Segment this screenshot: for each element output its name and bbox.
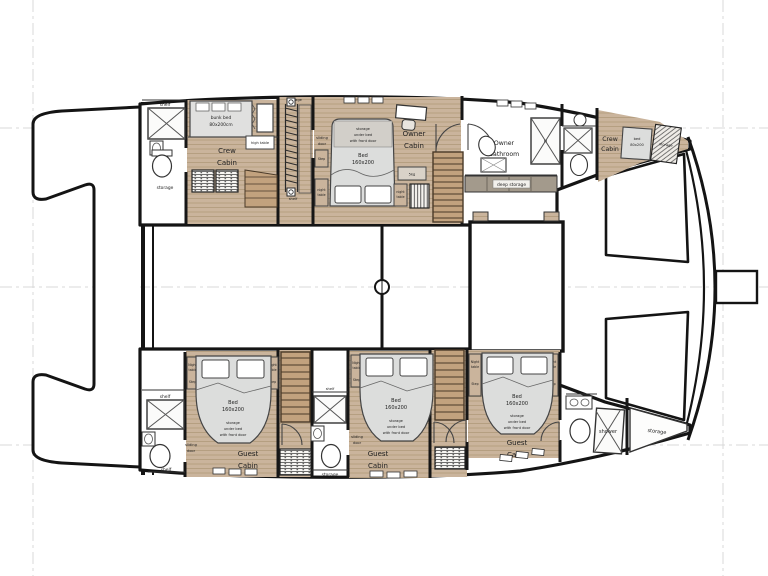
pillow [400,358,427,376]
deck-hatch [404,471,417,477]
cabin-door-panel [257,104,273,132]
wardrobe [410,184,429,208]
bed-label: Bed [358,153,368,159]
forward-cockpit [470,222,563,351]
deck-hatch [500,454,513,461]
owner-cabin-name2: Cabin [404,142,424,150]
deck-hatch [370,471,383,477]
under-bed-label3: with front door [220,433,247,437]
crew-bed-label: bed [634,137,641,141]
toilet [571,155,588,176]
shelf-label: shelf [160,102,171,108]
night-table-label2: table [317,193,325,197]
under-bed-label3: with front door [504,426,531,430]
bowsprit [716,271,757,303]
shelf-label: shelf [161,467,172,473]
storage-label: storage [322,472,339,478]
guest-cabin-name: Guest [238,450,259,458]
pillow [202,360,229,378]
sliding-door-label2: door [353,441,362,445]
sliding-door-label2: door [318,142,327,146]
trampoline-bottom [606,312,688,420]
owner-cabin-name: Owner [403,130,426,138]
night-table-label2: table [471,365,479,369]
night-table-label2: table [188,368,196,372]
night-table-label: night [396,190,405,194]
deck-hatch [245,469,257,475]
bed-size-label: 160x200 [352,160,374,166]
deck-hatch [372,97,383,103]
catamaran-floor-plan: deep storage shelf storage bunk bed 80x2… [0,0,768,576]
pillow [335,186,361,203]
drawer-unit [216,170,238,192]
guest-cabin-name: Guest [368,450,389,458]
night-table-label2: table [396,195,404,199]
crew-bed-size: 80x200 [630,143,644,147]
under-bed-label3: with front door [383,431,410,435]
pillow [365,186,391,203]
floor-plan-drawing: deep storage shelf storage bunk bed 80x2… [0,0,768,576]
crew-cabin-name2: Cabin [217,159,237,167]
shelf-label: shelf [326,387,335,391]
bunk-bed-label: bunk bed [211,115,232,121]
under-bed-label: storage [389,419,403,423]
bunk-bed-size: 80x200cm [209,122,232,128]
owner-stairs [433,152,463,222]
night-table-label: night [317,188,326,192]
pillow [521,357,547,374]
under-bed-label2: under bed [387,425,405,429]
under-bed-label: storage [356,127,370,131]
deep-storage: deep storage [465,176,557,192]
step-label: Step [318,157,325,161]
toilet [322,445,341,468]
stair-side-panel [299,105,311,193]
high-table-label: high table [251,141,270,145]
cabin-steps [245,170,277,207]
locker-unit [435,447,465,469]
bed-size-label: 160x200 [222,407,244,413]
crew-cabin-bow-name2: Cabin [601,146,619,153]
step-label: Step [189,380,196,384]
deck-hatch [213,468,225,474]
toilet [150,445,170,468]
deck-hatch [516,451,529,458]
storage-label: storage [157,185,174,191]
under-bed-label: storage [510,414,524,418]
stairwell-2 [434,350,466,469]
under-bed-label: storage [226,421,240,425]
bed-size-label: 160x200 [385,405,407,411]
deep-storage-label: deep storage [497,182,526,188]
locker-unit [280,449,311,475]
bed-label: Bed [512,394,522,400]
mast-line [375,226,389,350]
owner-bathroom-name: Owner [494,140,515,147]
shelf-label: shelf [160,394,171,400]
bed-label: Bed [228,400,238,406]
toilet [570,419,590,443]
deck-hatch [387,472,400,478]
deck-hatch [532,448,545,455]
deck-hatch [229,469,241,475]
bed-size-label: 160x200 [506,401,528,407]
sliding-door-label: sliding [185,443,197,447]
deck-hatch [497,100,508,106]
deck-hatch [344,97,355,103]
crew-cabin-name: Crew [218,147,236,155]
toilet [153,155,172,177]
night-table-label2: table [352,366,360,370]
guest-cabin-name: Guest [507,439,528,447]
stairwell-1 [280,352,311,475]
night-table-label: Night [471,360,480,364]
deck-hatch [511,101,522,107]
shelf-label: shelf [289,197,298,201]
under-bed-label2: under bed [508,420,526,424]
sliding-door-label: sliding [351,435,363,439]
sliding-door-label: sliding [316,136,328,140]
pillow [487,357,513,374]
deck-hatch [358,97,369,103]
under-bed-label2: under bed [354,133,372,137]
sliding-door-label2: door [187,449,196,453]
step-label: Step [353,378,360,382]
bed-label: Bed [391,398,401,404]
under-bed-label3: with front door [350,139,377,143]
under-bed-label2: under bed [224,427,242,431]
step-label: Step [471,382,478,386]
pillow [366,358,393,376]
drawer-unit [192,170,214,192]
sink [574,114,586,126]
guest-cabin-name2: Cabin [368,462,388,470]
bow-crossbeam [686,137,715,440]
washer-label: 5kg [409,173,416,177]
deck-hatch [525,103,536,109]
crew-cabin-bow-name: Crew [602,136,618,143]
shower-label: shower [599,429,618,435]
pillow [237,360,264,378]
